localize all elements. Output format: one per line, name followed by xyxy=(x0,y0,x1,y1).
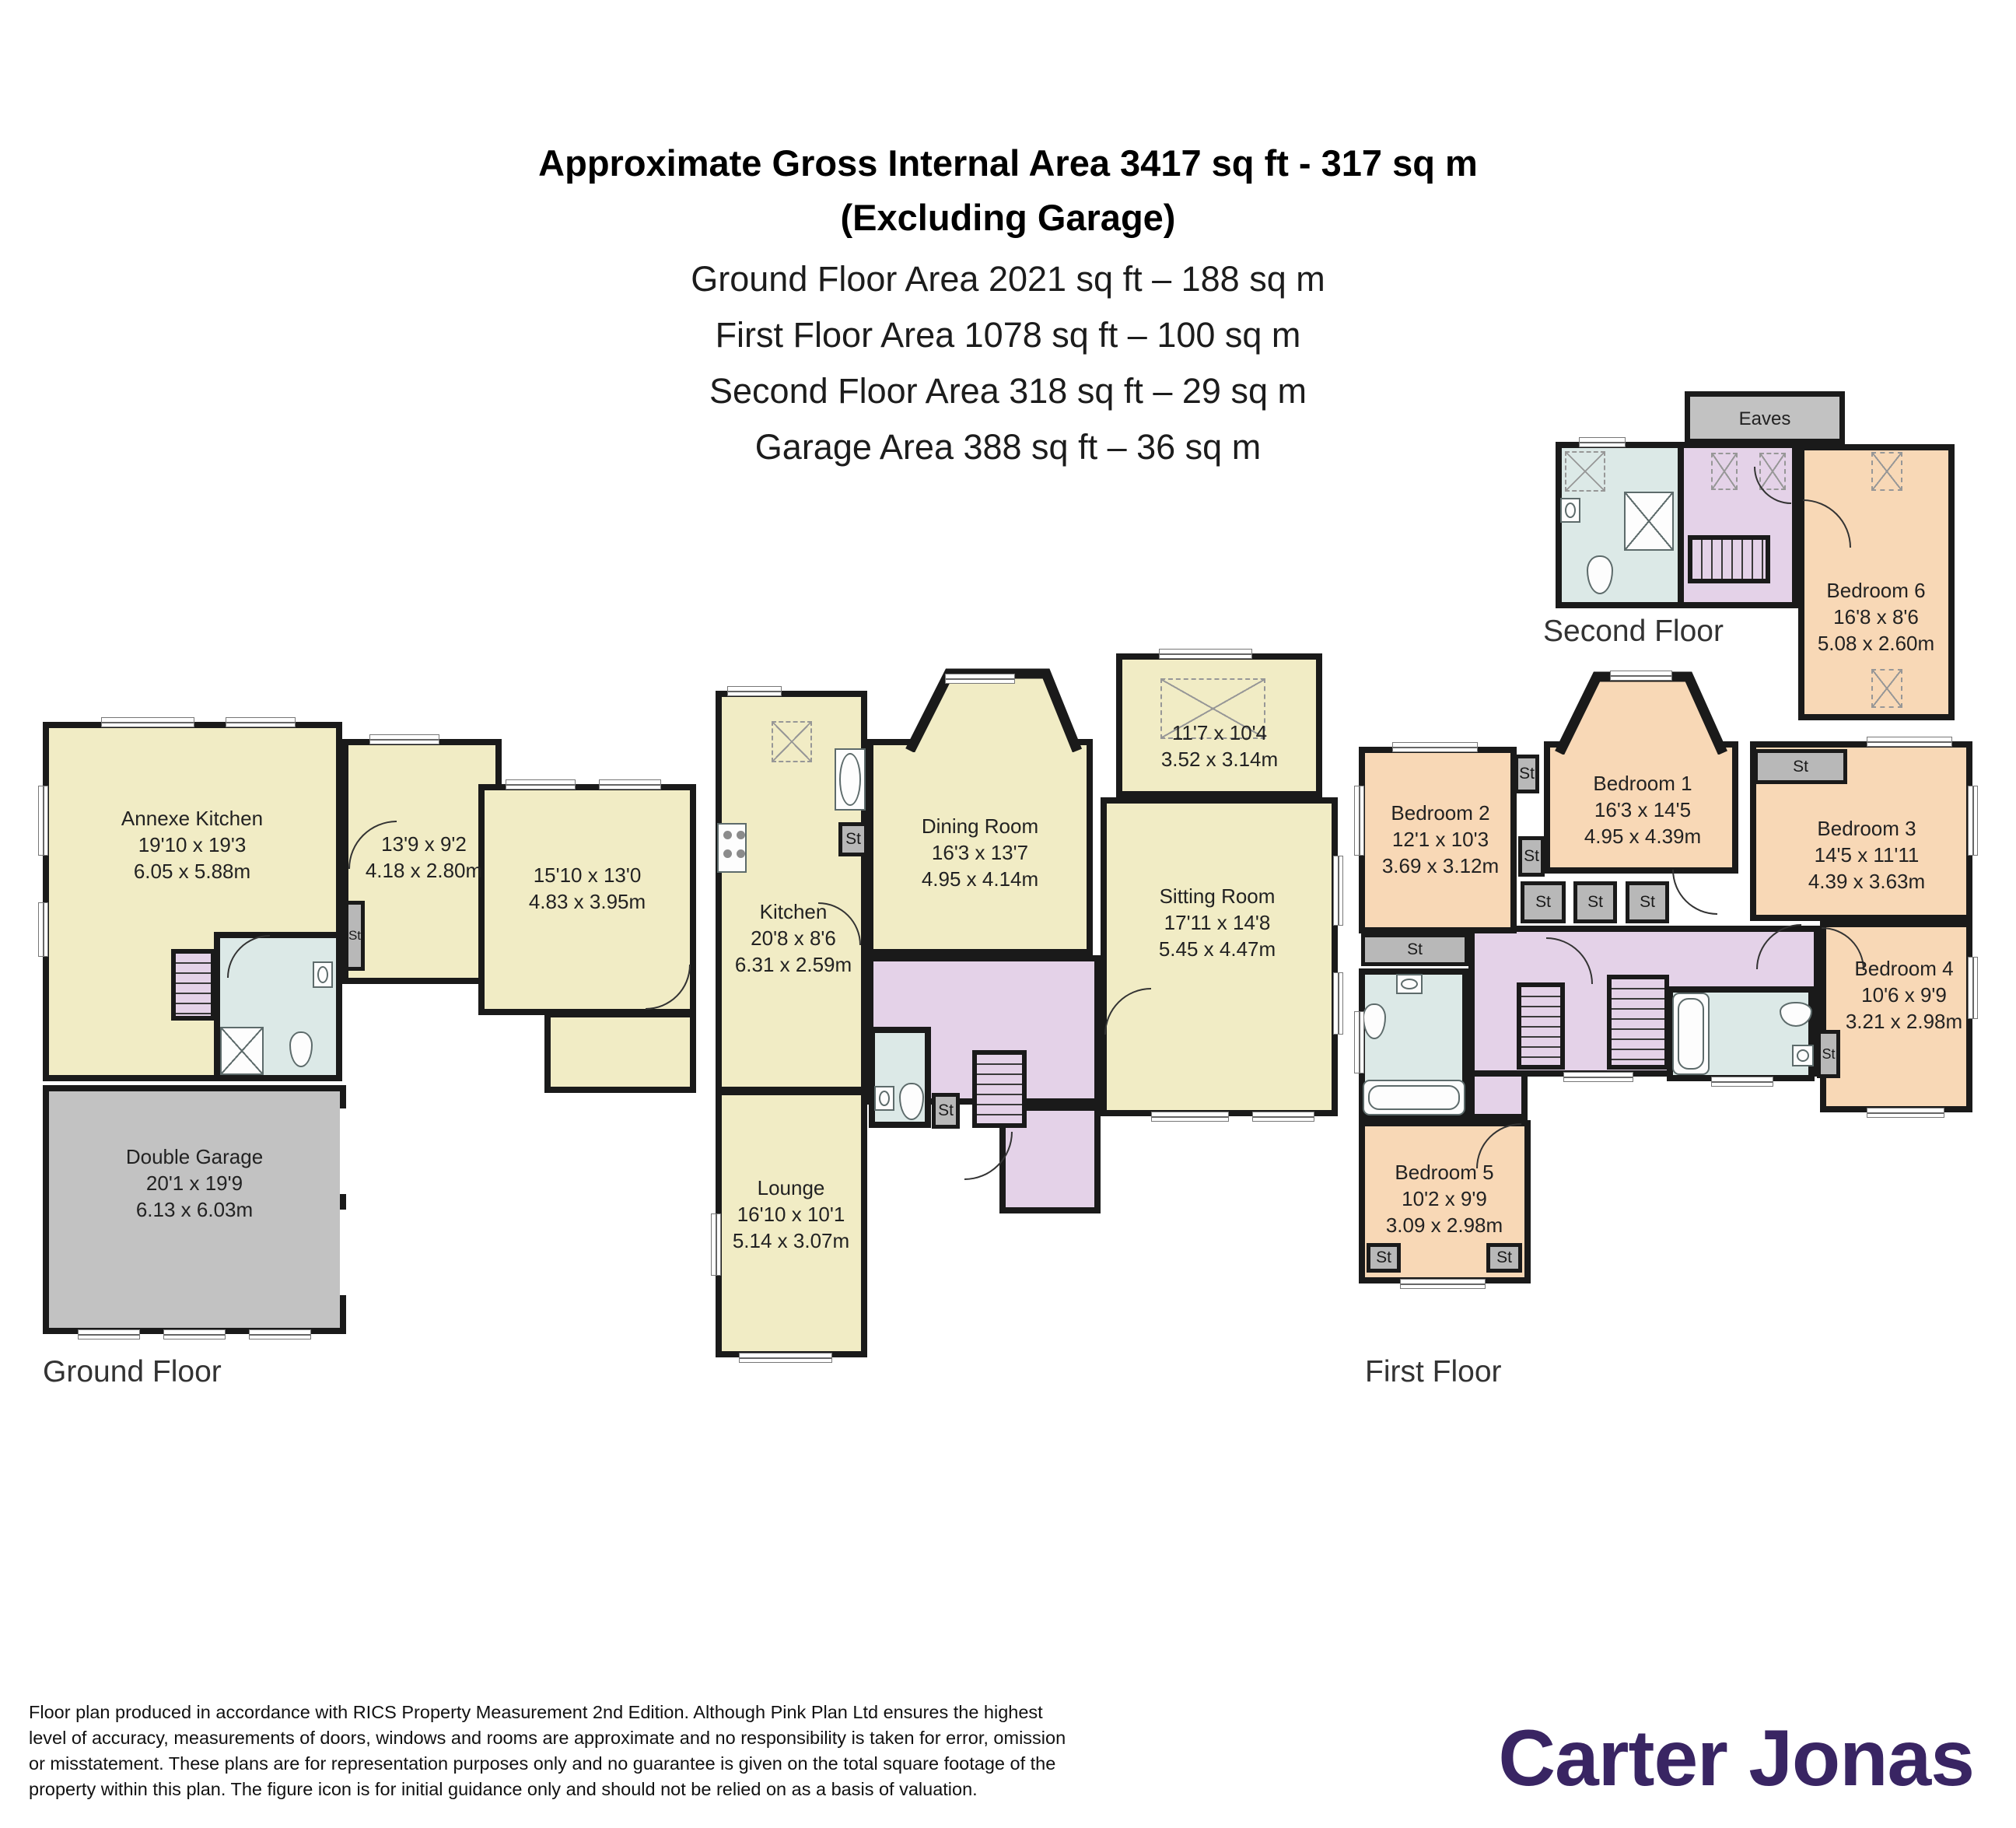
area-first: First Floor Area 1078 sq ft – 100 sq m xyxy=(0,315,2016,355)
label-bedroom4: Bedroom 4 10'6 x 9'9 3.21 x 2.98m xyxy=(1846,955,1962,1035)
stairs-hall xyxy=(972,1050,1027,1128)
page-title: Approximate Gross Internal Area 3417 sq … xyxy=(0,142,2016,184)
label-bedroom6: Bedroom 6 16'8 x 8'6 5.08 x 2.60m xyxy=(1818,577,1934,657)
window xyxy=(739,1353,832,1363)
label-eaves: Eaves xyxy=(1739,406,1791,432)
label-bedroom2: Bedroom 2 12'1 x 10'3 3.69 x 3.12m xyxy=(1382,800,1499,879)
window xyxy=(1968,786,1978,856)
window xyxy=(1867,1108,1944,1118)
disclaimer-line: property within this plan. The figure ic… xyxy=(29,1777,1195,1802)
label-sitting: Sitting Room 17'11 x 14'8 5.45 x 4.47m xyxy=(1159,883,1276,962)
sink-icon xyxy=(1560,498,1580,523)
window xyxy=(1151,1112,1229,1122)
storage-cupboard: St xyxy=(1486,1243,1522,1273)
window xyxy=(1392,742,1478,752)
shower-icon xyxy=(1624,492,1674,551)
stairs-first-a xyxy=(1517,982,1565,1070)
window xyxy=(369,734,439,744)
window xyxy=(78,1329,140,1339)
sink-icon xyxy=(1792,1045,1814,1066)
shower-icon xyxy=(220,1027,264,1075)
window xyxy=(1563,1072,1633,1082)
area-ground: Ground Floor Area 2021 sq ft – 188 sq m xyxy=(0,259,2016,299)
label-kitchen: Kitchen 20'8 x 8'6 6.31 x 2.59m xyxy=(735,898,852,978)
label-room-13-9: 13'9 x 9'2 4.18 x 2.80m xyxy=(366,831,482,884)
window xyxy=(1252,1112,1314,1122)
sink-icon xyxy=(874,1086,894,1111)
label-dining: Dining Room 16'3 x 13'7 4.95 x 4.14m xyxy=(922,813,1038,892)
label-bedroom1: Bedroom 1 16'3 x 14'5 4.95 x 4.39m xyxy=(1584,770,1701,849)
window xyxy=(1333,856,1343,926)
storage-cupboard: St xyxy=(1573,881,1617,923)
window xyxy=(727,686,782,696)
label-lounge: Lounge 16'10 x 10'1 5.14 x 3.07m xyxy=(733,1175,849,1254)
stairs-second xyxy=(1688,535,1770,583)
window xyxy=(1354,786,1364,856)
window xyxy=(1968,957,1978,1019)
bath-icon xyxy=(1672,993,1710,1075)
window xyxy=(1610,671,1672,681)
label-bedroom5: Bedroom 5 10'2 x 9'9 3.09 x 2.98m xyxy=(1386,1159,1503,1238)
storage-cupboard: St xyxy=(932,1093,960,1129)
window xyxy=(1867,737,1952,747)
stairs-annexe xyxy=(171,949,215,1021)
room-wc xyxy=(869,1027,931,1128)
window xyxy=(506,779,576,790)
disclaimer-line: or misstatement. These plans are for rep… xyxy=(29,1751,1195,1777)
window xyxy=(163,1329,226,1339)
window xyxy=(38,786,48,856)
page-subtitle: (Excluding Garage) xyxy=(0,196,2016,239)
skylight-icon xyxy=(1711,453,1738,490)
storage-cupboard: St xyxy=(1518,836,1545,877)
label-garage: Double Garage 20'1 x 19'9 6.13 x 6.03m xyxy=(126,1143,263,1223)
storage-cupboard: St xyxy=(1817,1030,1840,1078)
window xyxy=(1400,1279,1486,1289)
disclaimer: Floor plan produced in accordance with R… xyxy=(29,1700,1195,1802)
label-conservatory: 11'7 x 10'4 3.52 x 3.14m xyxy=(1161,720,1278,772)
storage-cupboard: St xyxy=(1521,881,1566,923)
ground-floor-label: Ground Floor xyxy=(43,1355,222,1389)
storage-cupboard: St xyxy=(1626,881,1669,923)
landing-corridor xyxy=(1468,1070,1528,1120)
window xyxy=(711,1213,721,1276)
storage-cupboard: St xyxy=(1514,755,1539,793)
window xyxy=(1333,972,1343,1035)
sink-icon xyxy=(1396,974,1423,994)
label-annexe-kitchen: Annexe Kitchen 19'10 x 19'3 6.05 x 5.88m xyxy=(121,805,263,884)
window xyxy=(101,717,194,727)
brand-logo: Carter Jonas xyxy=(1498,1713,1974,1804)
storage-cupboard: St xyxy=(1754,749,1847,784)
window xyxy=(1711,1077,1773,1087)
stairs-first-b xyxy=(1607,975,1669,1070)
storage-cupboard: St xyxy=(838,822,868,856)
garage-door-opening xyxy=(340,1108,352,1194)
disclaimer-line: level of accuracy, measurements of doors… xyxy=(29,1725,1195,1751)
floorplan-page: Approximate Gross Internal Area 3417 sq … xyxy=(0,0,2016,1828)
hob-icon xyxy=(717,823,747,873)
window xyxy=(1579,437,1626,447)
bath-icon xyxy=(1363,1080,1465,1115)
door-arc xyxy=(1672,870,1717,915)
shower-icon xyxy=(1565,451,1605,492)
window xyxy=(226,717,296,727)
window xyxy=(38,902,48,957)
storage-cupboard: St xyxy=(1361,933,1468,966)
window xyxy=(1159,649,1252,659)
window xyxy=(945,674,1015,684)
storage-cupboard: St xyxy=(345,901,365,971)
second-floor-label: Second Floor xyxy=(1543,615,1724,649)
window xyxy=(249,1329,311,1339)
first-floor-label: First Floor xyxy=(1365,1355,1502,1389)
storage-cupboard: St xyxy=(1367,1243,1401,1273)
window xyxy=(1354,1011,1364,1073)
skylight-icon xyxy=(772,721,812,762)
sink-icon xyxy=(313,961,333,988)
kitchen-sink-icon xyxy=(835,748,866,811)
room-connector xyxy=(544,1011,696,1093)
label-room-15-10: 15'10 x 13'0 4.83 x 3.95m xyxy=(529,862,646,915)
window xyxy=(599,779,661,790)
label-bedroom3: Bedroom 3 14'5 x 11'11 4.39 x 3.63m xyxy=(1808,815,1925,895)
skylight-icon xyxy=(1871,669,1902,708)
disclaimer-line: Floor plan produced in accordance with R… xyxy=(29,1700,1195,1725)
skylight-icon xyxy=(1871,452,1902,491)
garage-door-opening xyxy=(340,1210,352,1295)
